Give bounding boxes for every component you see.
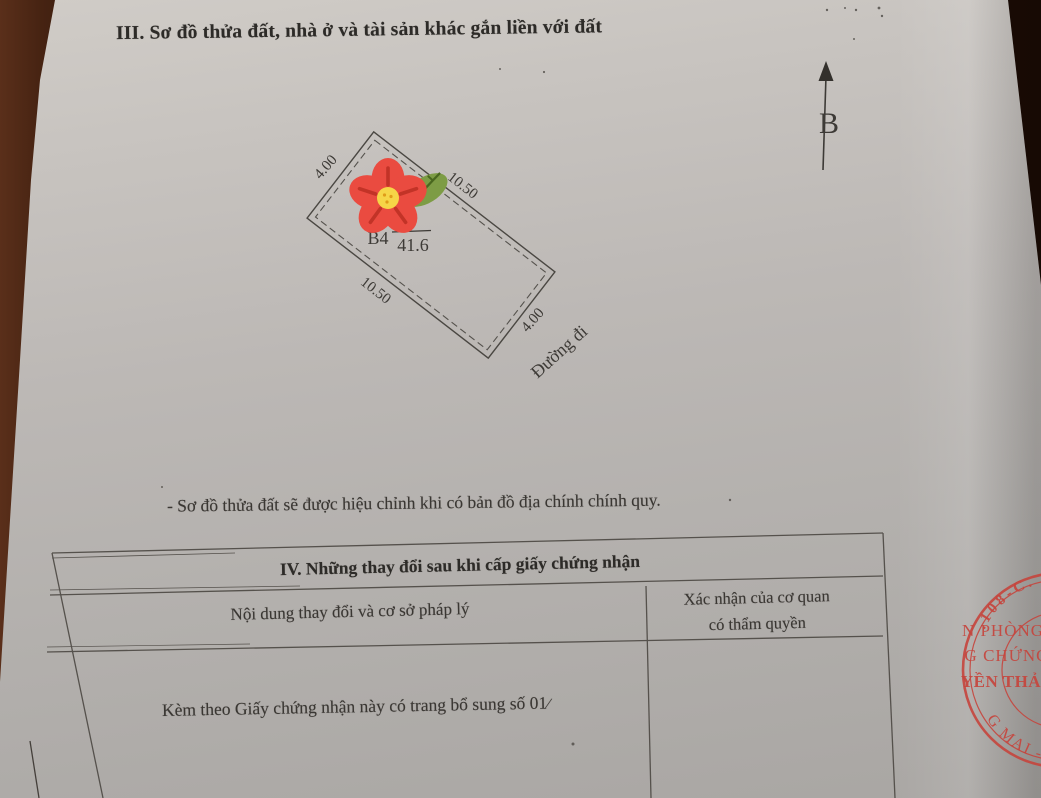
column-header-content: Nội dung thay đổi và cơ sở pháp lý bbox=[150, 597, 550, 627]
column-header-confirmation: Xác nhận của cơ quan có thẩm quyền bbox=[647, 582, 866, 638]
section-iii-title: III. Sơ đồ thửa đất, nhà ở và tài sản kh… bbox=[116, 15, 706, 45]
supplementary-page-text: Kèm theo Giấy chứng nhận này có trang bổ… bbox=[162, 693, 547, 720]
section-iv-title: IV. Những thay đổi sau khi cấp giấy chứn… bbox=[225, 550, 695, 582]
adjustment-note: - Sơ đồ thửa đất sẽ được hiệu chỉnh khi … bbox=[167, 488, 767, 516]
stray-pen-mark: ⁄ bbox=[547, 697, 550, 713]
column-header-confirmation-line2: có thẩm quyền bbox=[648, 608, 867, 639]
supplementary-page-row: Kèm theo Giấy chứng nhận này có trang bổ… bbox=[162, 690, 682, 721]
certificate-photo: 4.00 10.50 10.50 4.00 Đường đi B4 1 41.6… bbox=[0, 0, 1041, 798]
